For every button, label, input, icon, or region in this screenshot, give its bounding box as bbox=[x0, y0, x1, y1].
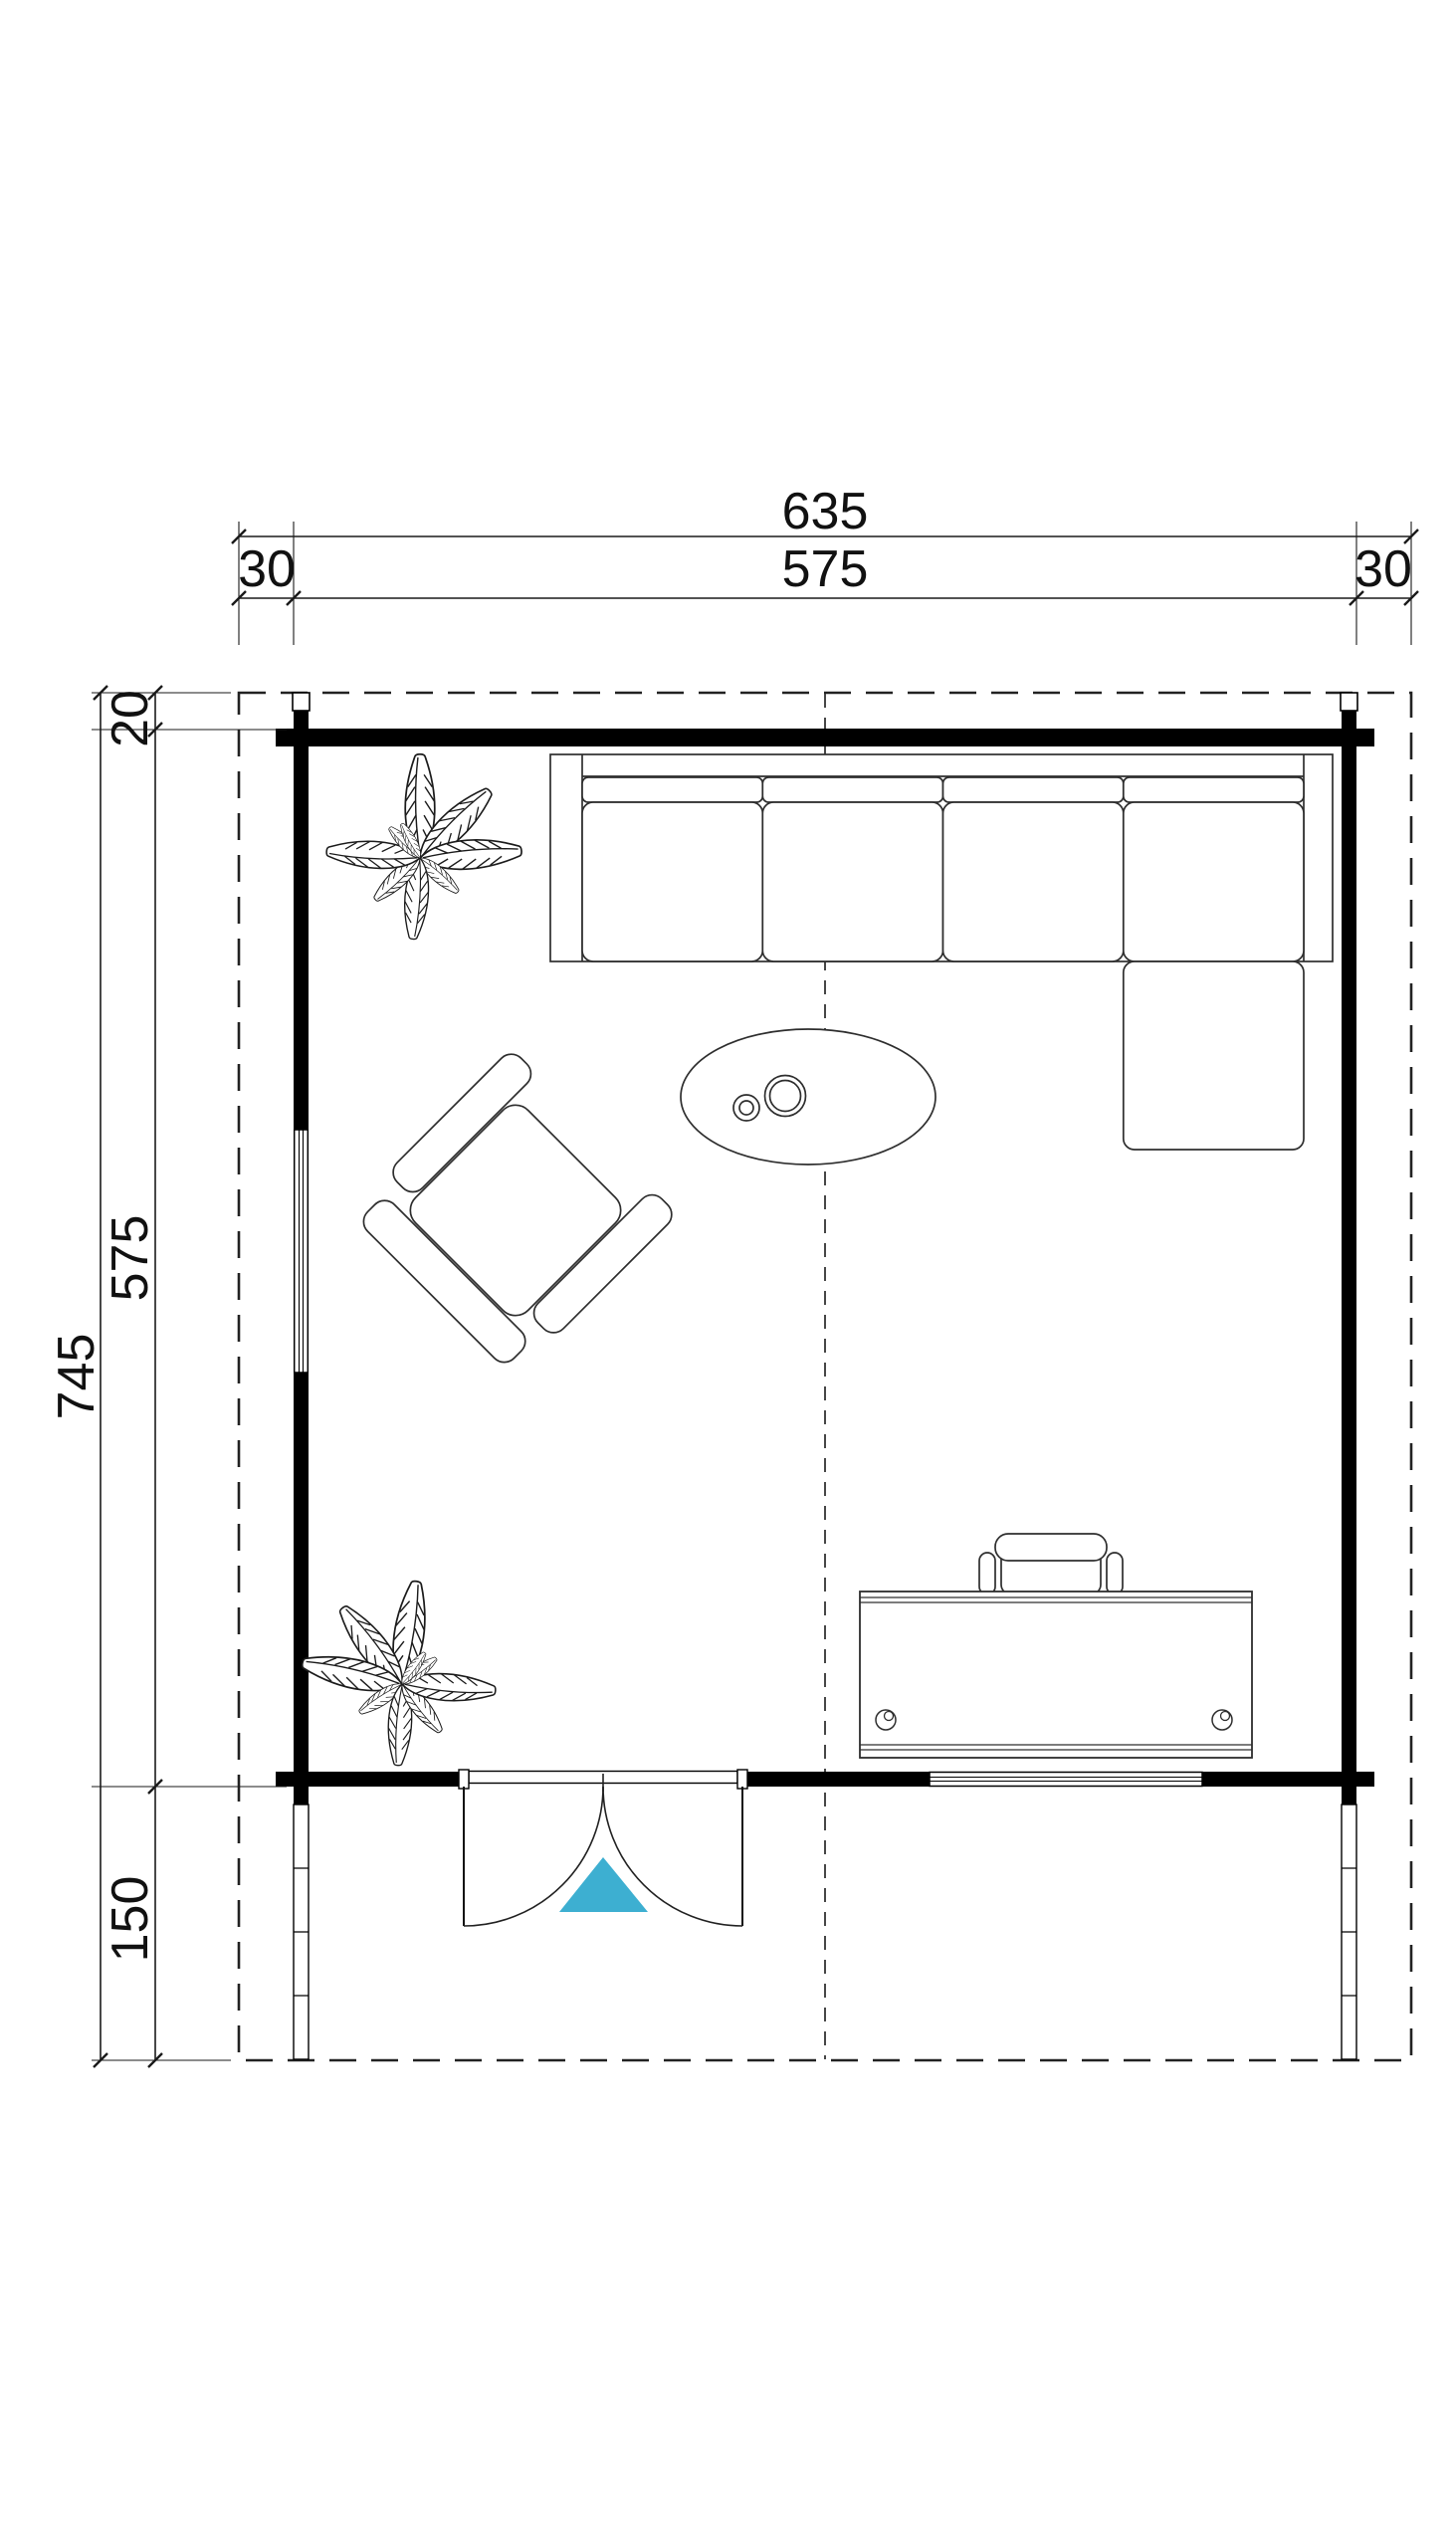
office-chair-arm bbox=[979, 1553, 995, 1594]
wall-right bbox=[1342, 710, 1356, 1805]
floor-plan-page: 635 30 575 30 20 575 150 745 bbox=[0, 0, 1456, 2548]
sofa-back-cushion bbox=[1124, 777, 1304, 802]
armchair bbox=[348, 1048, 678, 1378]
sofa-seat-cushion bbox=[762, 802, 942, 961]
desk bbox=[860, 1592, 1252, 1758]
window-left-wall bbox=[295, 1130, 309, 1373]
double-door bbox=[459, 1770, 747, 1926]
office-chair-arm bbox=[1107, 1553, 1123, 1594]
dim-top-left-overhang: 30 bbox=[238, 540, 296, 598]
sofa-seat-cushion bbox=[943, 802, 1124, 961]
dim-left-top-overhang: 20 bbox=[102, 690, 159, 747]
sofa-back-cushion bbox=[943, 777, 1124, 802]
coffee-table bbox=[681, 1029, 936, 1165]
log-end-cap-left bbox=[293, 693, 310, 711]
sofa-back-cushion bbox=[762, 777, 942, 802]
wall-back bbox=[276, 729, 1374, 746]
sofa-chaise bbox=[1124, 961, 1304, 1150]
window-front-wall bbox=[930, 1773, 1202, 1787]
door-jamb-right bbox=[737, 1770, 747, 1789]
sofa-back-cushion bbox=[582, 777, 762, 802]
potted-plant-top bbox=[325, 754, 522, 941]
wall-left-lower bbox=[294, 1373, 309, 1805]
wall-left-upper bbox=[294, 710, 309, 1130]
door-jamb-left bbox=[459, 1770, 469, 1789]
dimensions bbox=[92, 522, 1418, 2067]
wall-front-right bbox=[1202, 1772, 1374, 1787]
sofa-seat-cushion bbox=[1124, 802, 1304, 961]
dim-top-total: 635 bbox=[782, 483, 869, 540]
dim-left-total: 745 bbox=[48, 1334, 105, 1420]
coffee-table-top bbox=[681, 1029, 936, 1165]
door-brand-triangle bbox=[559, 1857, 648, 1912]
office-chair bbox=[979, 1534, 1123, 1594]
desk-top bbox=[860, 1592, 1252, 1758]
floor-plan-drawing: 635 30 575 30 20 575 150 745 bbox=[0, 0, 1456, 2548]
log-end-cap-right bbox=[1341, 693, 1357, 711]
dim-left-depth: 575 bbox=[102, 1215, 159, 1302]
wall-front-left bbox=[276, 1772, 459, 1787]
corner-sofa bbox=[550, 754, 1333, 1150]
wall-front-mid bbox=[747, 1772, 930, 1787]
potted-plant-bottom bbox=[290, 1567, 511, 1779]
sofa-seat-cushion bbox=[582, 802, 762, 961]
dim-top-right-overhang: 30 bbox=[1354, 540, 1412, 598]
office-chair-back bbox=[995, 1534, 1107, 1561]
dim-left-terrace: 150 bbox=[102, 1876, 159, 1963]
dim-top-width: 575 bbox=[782, 540, 869, 598]
